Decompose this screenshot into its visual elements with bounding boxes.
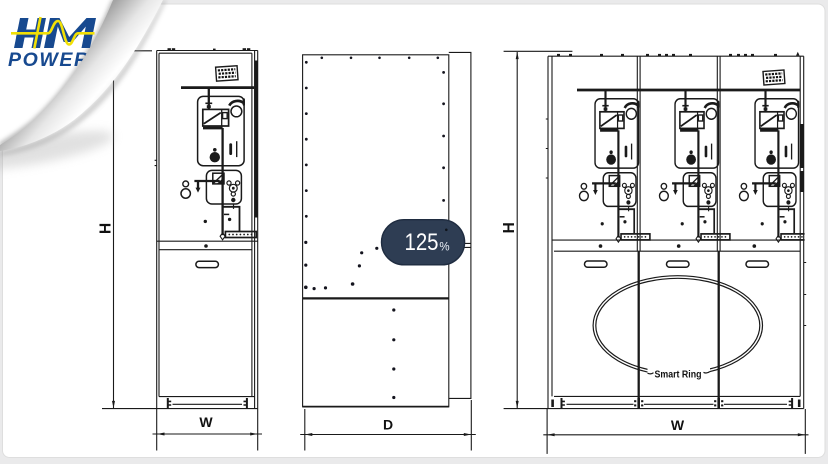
svg-text:POWER: POWER — [8, 49, 90, 71]
svg-text:D: D — [383, 417, 393, 433]
svg-text:%: % — [439, 242, 449, 254]
svg-text:W: W — [199, 414, 213, 430]
svg-text:Smart Ring: Smart Ring — [655, 369, 702, 381]
svg-text:H: H — [97, 223, 114, 234]
svg-text:W: W — [671, 417, 685, 433]
svg-text:H: H — [501, 222, 518, 233]
svg-text:125: 125 — [405, 229, 439, 256]
